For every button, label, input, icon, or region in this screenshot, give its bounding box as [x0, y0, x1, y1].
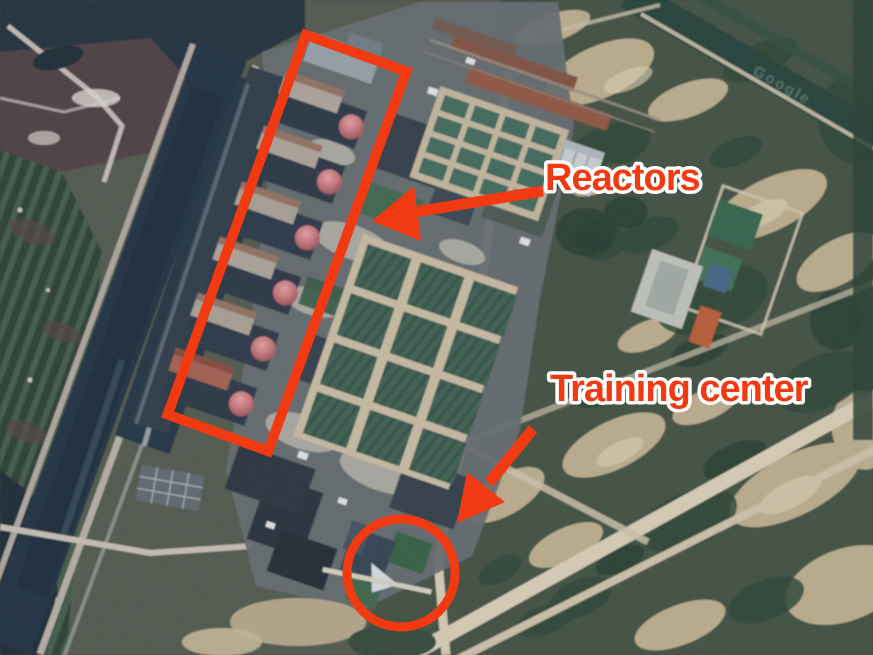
annotations-overlay: Reactors Training center: [0, 0, 873, 655]
training-center-arrow: [457, 429, 533, 523]
training-center-label: Training center: [550, 368, 809, 410]
reactors-outline-box: [168, 35, 407, 451]
reactors-label: Reactors: [545, 157, 700, 199]
annotated-satellite-view: Google Reactors Training center: [0, 0, 873, 655]
reactors-arrow: [372, 186, 543, 241]
training-center-circle: [347, 519, 455, 627]
